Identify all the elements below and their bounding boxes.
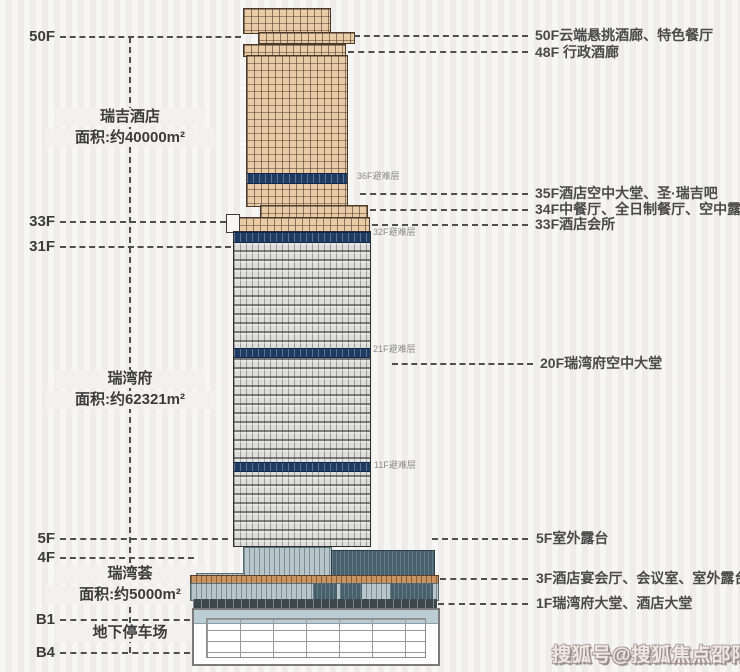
refuge-band-11f <box>234 462 370 472</box>
building-elevation-diagram: 50F 33F 31F 5F 4F B1 B4 瑞吉酒店 面积:约40000m²… <box>0 0 740 672</box>
podium-entrance-block-3 <box>390 583 433 599</box>
refuge-band-36f <box>247 173 347 184</box>
leader-line-1f <box>438 603 528 605</box>
tower-crown-block <box>243 8 331 34</box>
floor-line-4f <box>60 557 194 559</box>
leader-line-34f <box>370 209 528 211</box>
annotation-3f: 3F酒店宴会厅、会议室、室外露台 <box>536 569 740 587</box>
tower-50f-cantilever-lounge <box>258 32 355 44</box>
section-name-ruiwanhui: 瑞湾荟 <box>55 565 205 583</box>
annotation-5f: 5F室外露台 <box>536 529 608 547</box>
tower-residence-body <box>233 231 371 547</box>
leader-line-3f <box>440 578 528 580</box>
floor-label-50f: 50F <box>15 28 55 45</box>
refuge-band-32f <box>234 232 370 243</box>
podium-entrance-block-2 <box>340 583 362 599</box>
section-area-st-regis-hotel: 面积:约40000m² <box>45 129 215 147</box>
section-name-ruiwanfu: 瑞湾府 <box>55 370 205 388</box>
floor-line-33f <box>60 221 236 223</box>
floor-line-b1 <box>60 619 190 621</box>
section-name-underground-parking: 地下停车场 <box>55 624 205 642</box>
floor-label-33f: 33F <box>15 213 55 230</box>
floor-label-5f: 5F <box>15 530 55 547</box>
podium-entrance-block-1 <box>313 583 337 599</box>
floor-label-b1: B1 <box>15 611 55 628</box>
leader-line-33f <box>372 224 528 226</box>
floor-line-31f <box>60 246 231 248</box>
underground-parking-grid <box>206 618 426 658</box>
underground-parking-box <box>192 608 440 666</box>
ground-floor-band <box>193 599 437 608</box>
floor-label-b4: B4 <box>15 644 55 661</box>
floor-label-31f: 31F <box>15 238 55 255</box>
sohu-watermark: 搜狐号@搜狐焦点邵阳站 <box>552 640 740 667</box>
floor-line-50f <box>60 36 241 38</box>
annotation-50f: 50F云端悬挑酒廊、特色餐厅 <box>535 26 713 44</box>
leader-line-20f <box>392 363 533 365</box>
section-area-ruiwanfu: 面积:约62321m² <box>45 391 215 409</box>
annotation-48f: 48F 行政酒廊 <box>535 43 619 61</box>
refuge-label-32f: 32F避难层 <box>373 227 416 237</box>
tower-hotel-body <box>246 55 348 207</box>
section-name-st-regis-hotel: 瑞吉酒店 <box>55 108 205 126</box>
leader-line-48f <box>348 51 528 53</box>
floor-label-4f: 4F <box>15 549 55 566</box>
floor-line-5f <box>60 538 228 540</box>
annotation-1f: 1F瑞湾府大堂、酒店大堂 <box>536 594 692 612</box>
leader-line-35f <box>360 193 528 195</box>
refuge-band-21f <box>234 348 370 358</box>
annotation-20f: 20F瑞湾府空中大堂 <box>540 354 662 372</box>
leader-line-5f <box>432 538 528 540</box>
annotation-33f: 33F酒店会所 <box>535 215 615 233</box>
refuge-label-21f: 21F避难层 <box>373 344 416 354</box>
floor-line-b4 <box>60 652 190 654</box>
refuge-label-11f: 11F避难层 <box>374 460 416 470</box>
leader-line-50f <box>354 35 528 37</box>
refuge-label-36f: 36F避难层 <box>357 171 400 181</box>
